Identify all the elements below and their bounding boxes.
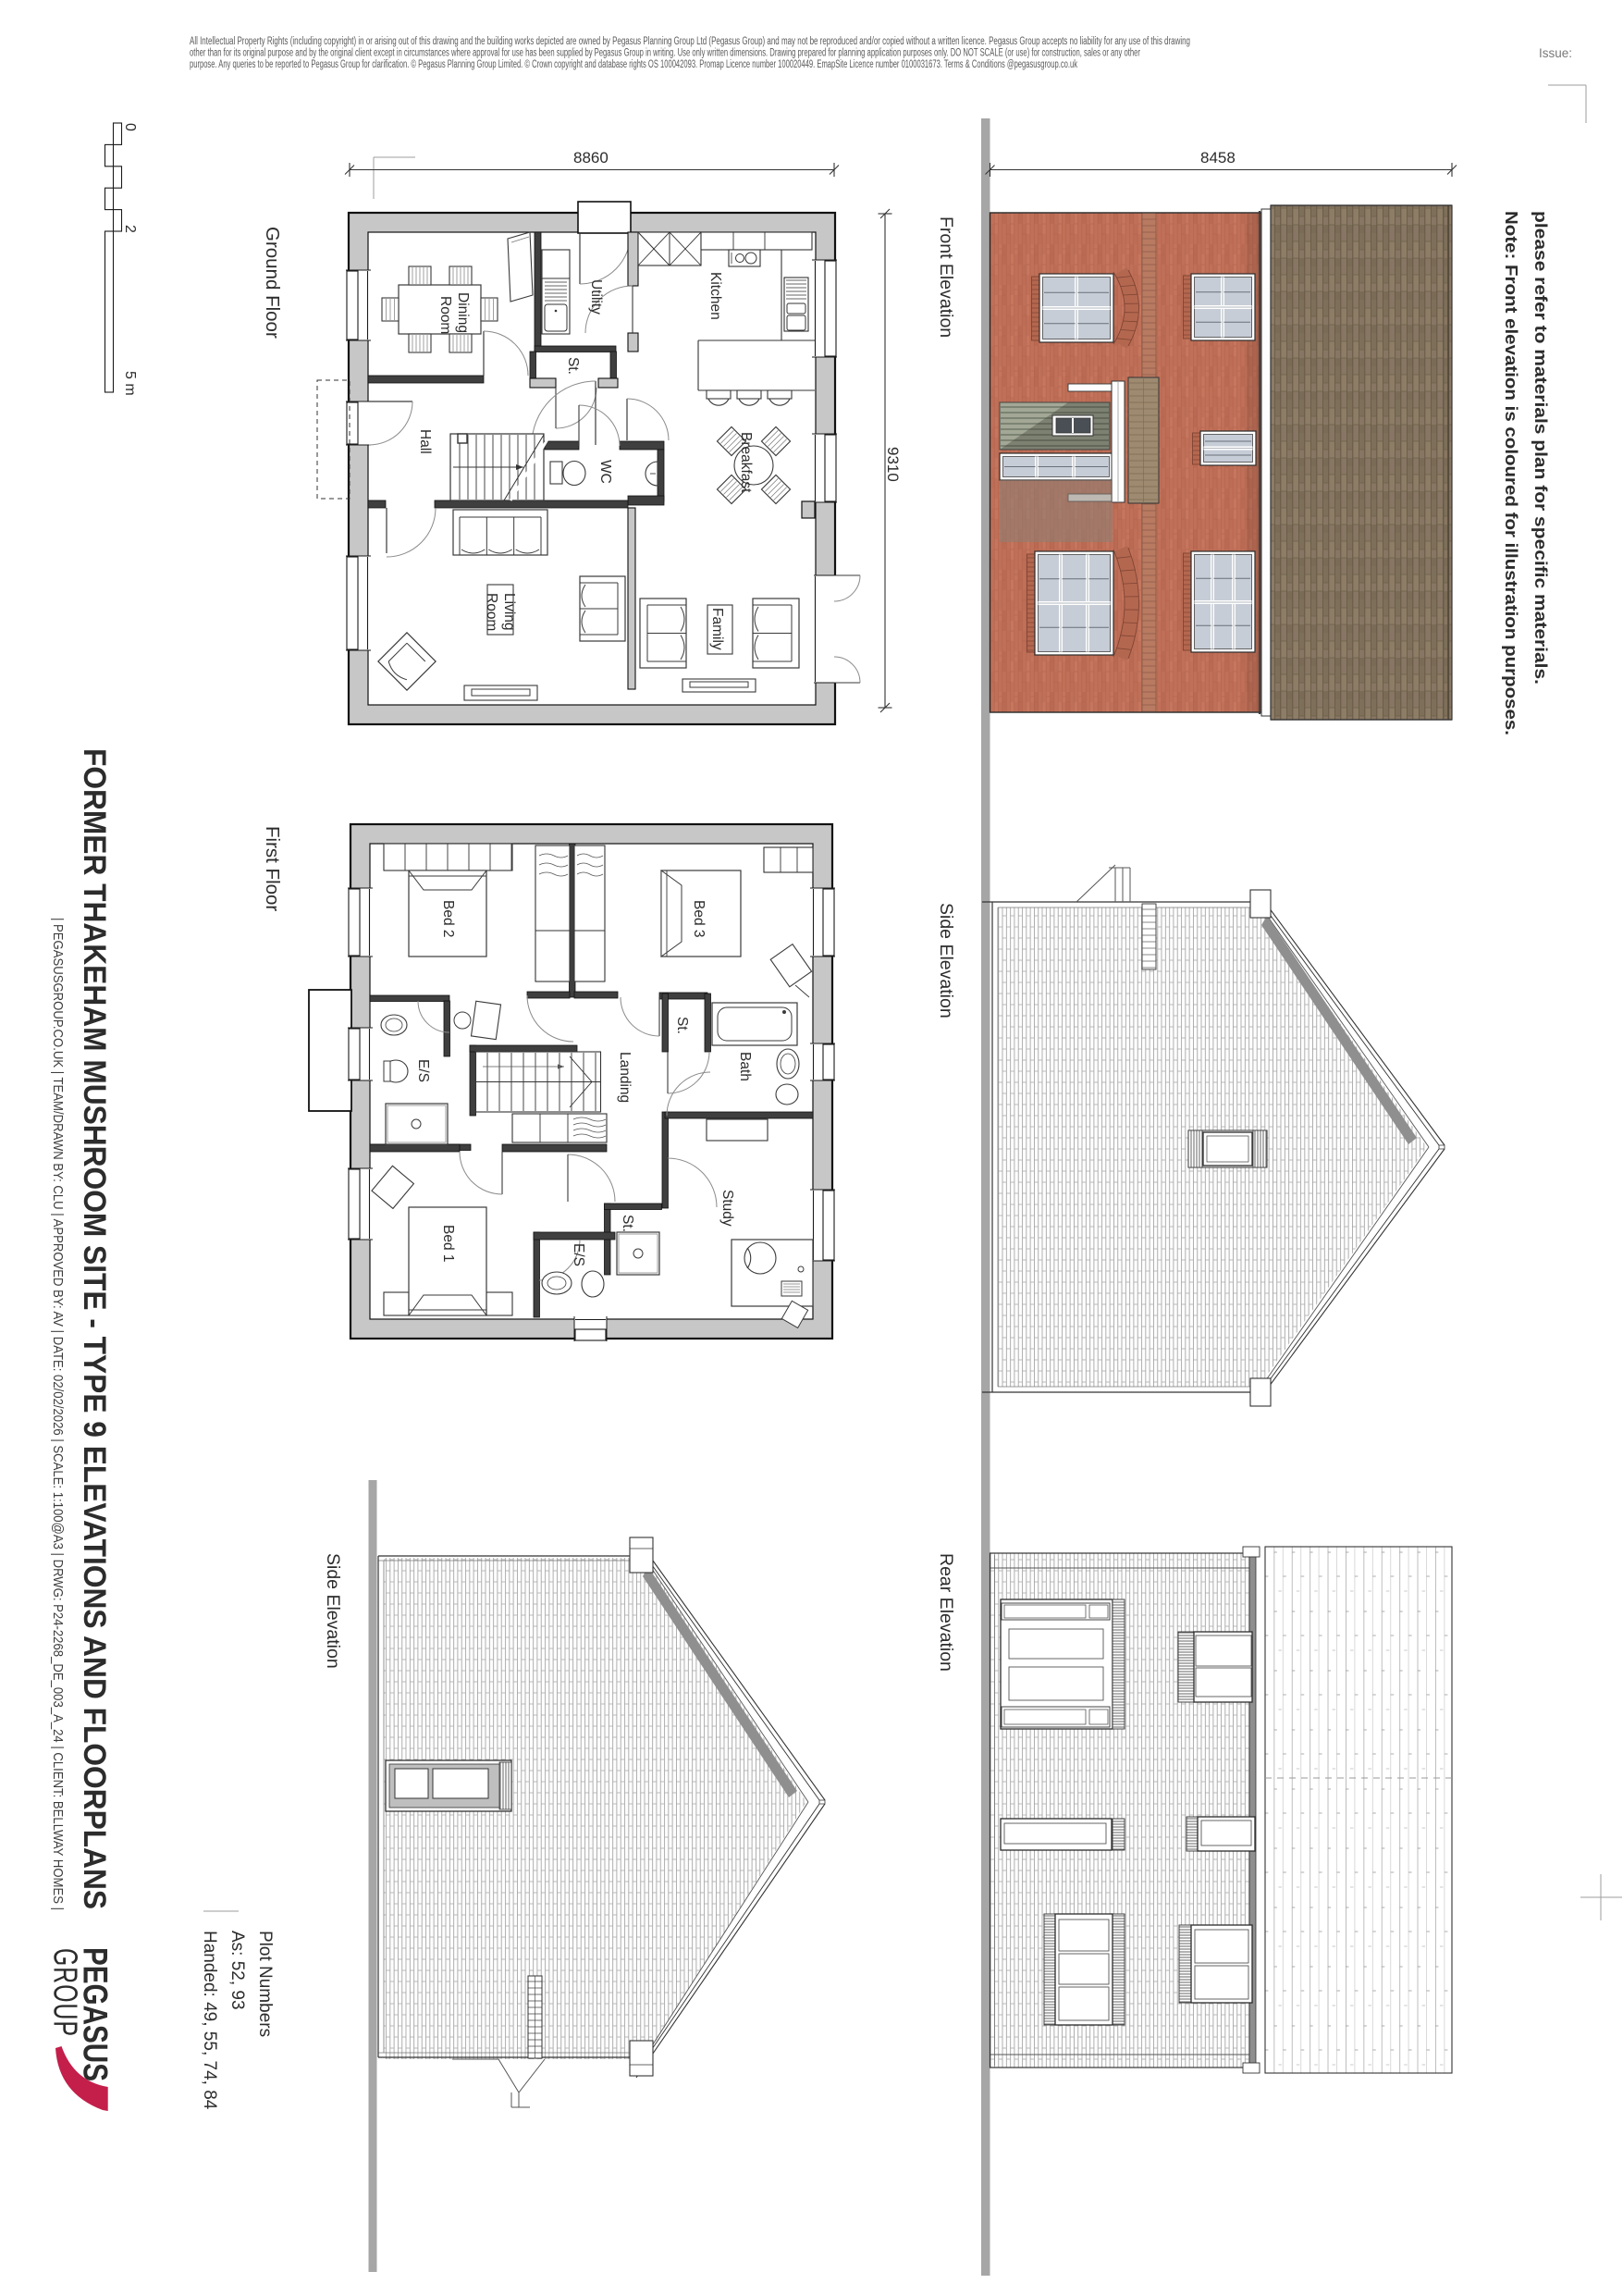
svg-text:Living: Living (501, 593, 517, 631)
svg-text:Note: Front elevation is colou: Note: Front elevation is coloured for il… (1502, 211, 1521, 735)
svg-text:Side Elevation: Side Elevation (323, 1553, 343, 1669)
svg-text:Breakfast: Breakfast (738, 432, 754, 493)
svg-text:Bed 2: Bed 2 (440, 900, 456, 938)
svg-text:Front Elevation: Front Elevation (936, 216, 956, 338)
svg-text:FORMER THAKEHAM MUSHROOM SITE: FORMER THAKEHAM MUSHROOM SITE - TYPE 9 E… (77, 748, 112, 1909)
svg-text:Study: Study (719, 1190, 735, 1227)
svg-text:Hall: Hall (417, 429, 433, 454)
svg-text:Handed: 49, 55, 74, 84: Handed: 49, 55, 74, 84 (200, 1931, 219, 2110)
svg-text:9310: 9310 (884, 447, 902, 482)
svg-text:All Intellectual Property Righ: All Intellectual Property Rights (includ… (190, 36, 1190, 47)
svg-text:St.: St. (674, 1017, 690, 1034)
svg-text:Kitchen: Kitchen (707, 272, 723, 320)
svg-text:As: 52, 93: As: 52, 93 (227, 1931, 247, 2010)
svg-text:Bed 3: Bed 3 (691, 900, 707, 938)
svg-text:Landing: Landing (617, 1052, 633, 1103)
svg-text:Utility: Utility (588, 279, 604, 315)
svg-text:WC: WC (597, 460, 613, 484)
svg-text:purpose. Any queries to be re: purpose. Any queries to be reported to P… (190, 59, 1077, 70)
svg-text:GROUP: GROUP (47, 1948, 85, 2037)
svg-text:St.: St. (565, 357, 581, 375)
svg-text:Dining: Dining (455, 292, 471, 333)
svg-text:Plot Numbers: Plot Numbers (255, 1931, 275, 2037)
svg-text:please refer to materials plan: please refer to materials plan for speci… (1531, 211, 1551, 685)
svg-text:Ground Floor: Ground Floor (262, 227, 283, 339)
svg-text:other than for its original pu: other than for its original purpose and … (190, 48, 1140, 59)
svg-text:| PEGASUSGROUP.CO.UK | T: | PEGASUSGROUP.CO.UK | TEAM/DRAWN BY: CL… (50, 918, 66, 1910)
svg-text:Room: Room (484, 593, 499, 631)
svg-text:8458: 8458 (1200, 149, 1236, 167)
svg-text:Bed 1: Bed 1 (440, 1225, 456, 1263)
svg-text:Family: Family (709, 608, 725, 650)
svg-text:E/S: E/S (415, 1059, 431, 1082)
svg-text:8860: 8860 (573, 149, 609, 167)
svg-text:5 m: 5 m (122, 371, 138, 396)
svg-text:First Floor: First Floor (262, 826, 283, 911)
svg-text:Room: Room (437, 296, 453, 334)
svg-text:Side Elevation: Side Elevation (936, 903, 956, 1018)
svg-text:Bath: Bath (737, 1052, 753, 1081)
svg-text:Rear Elevation: Rear Elevation (936, 1553, 956, 1672)
svg-text:Issue:: Issue: (1539, 46, 1572, 60)
svg-text:0: 0 (122, 123, 138, 131)
svg-text:2: 2 (122, 225, 138, 233)
svg-text:St.: St. (620, 1215, 635, 1232)
svg-text:E/S: E/S (571, 1243, 586, 1266)
